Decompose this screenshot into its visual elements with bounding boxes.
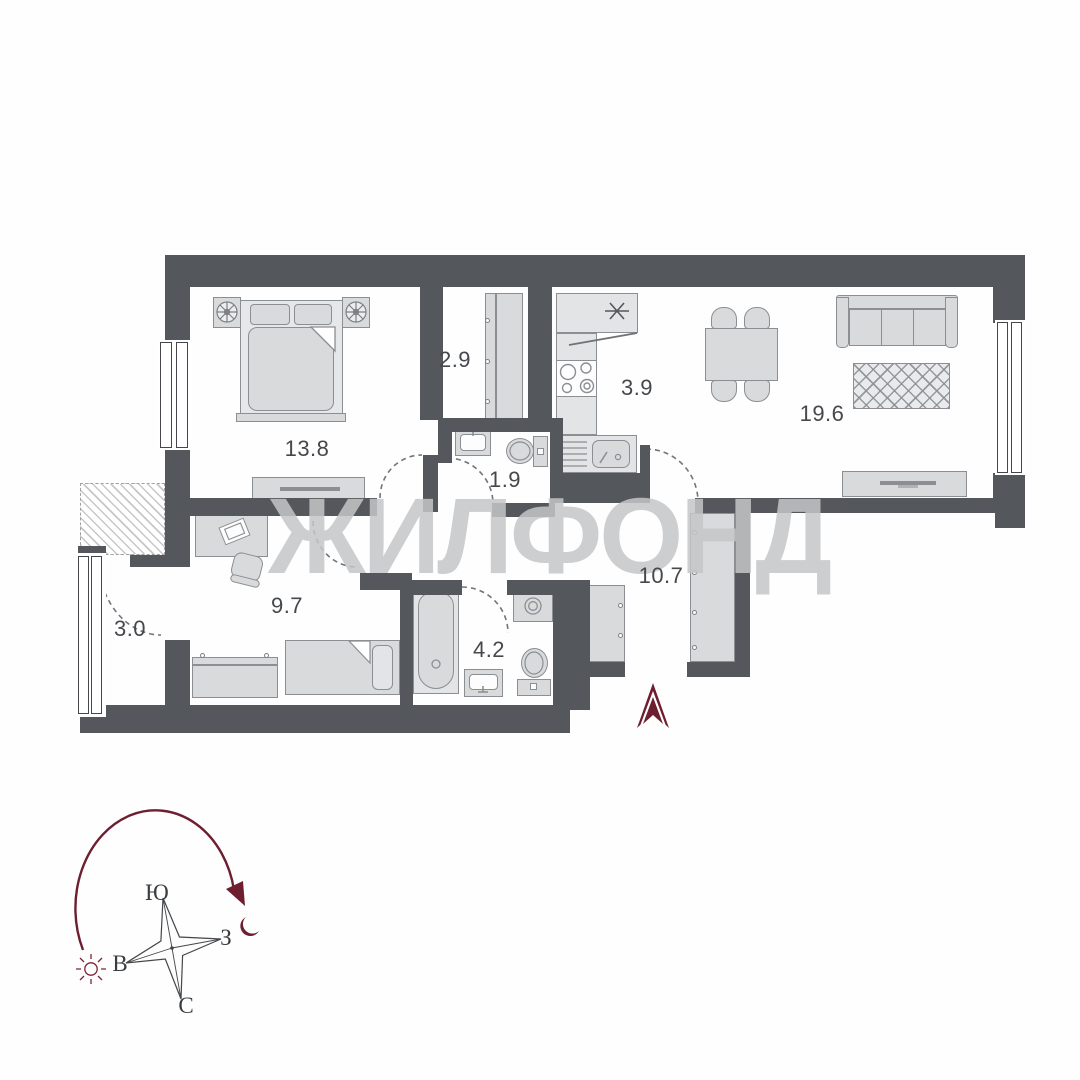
window (158, 340, 192, 450)
room-label-hallway: 10.7 (639, 563, 684, 589)
room-label-bedroom: 13.8 (285, 436, 330, 462)
nightstand (213, 297, 241, 328)
fridge-cabinet (556, 293, 638, 333)
wall (400, 590, 413, 705)
sofa-armrest (836, 297, 849, 348)
sofa-armrest (945, 297, 958, 348)
wall (580, 662, 625, 677)
sofa-seat (913, 309, 946, 346)
balcony-glazing (76, 553, 106, 717)
dresser-knob (200, 653, 205, 658)
chair (711, 380, 737, 402)
compass-label-south: Ю (145, 880, 169, 906)
pillow (372, 645, 393, 690)
compass-star (126, 898, 221, 999)
sink-basin (469, 674, 498, 690)
room-label-kids-room: 9.7 (271, 593, 303, 619)
wall (165, 287, 190, 343)
wall (528, 287, 552, 430)
toilet-button (537, 448, 544, 455)
hall-wardrobe (588, 585, 625, 662)
chair (744, 307, 770, 329)
wall (993, 287, 1025, 323)
room-label-toilet: 1.9 (489, 467, 521, 493)
wall (993, 473, 1025, 501)
sofa-back (836, 295, 958, 309)
sofa-seat (881, 309, 914, 346)
toilet-bowl (506, 438, 534, 464)
wall (438, 418, 560, 432)
wall (130, 555, 165, 567)
dresser-knob (264, 653, 269, 658)
sun-icon (76, 954, 106, 984)
dining-table (705, 328, 778, 381)
rug (853, 363, 950, 409)
wall (438, 432, 452, 463)
bed-footboard (236, 413, 346, 422)
wardrobe-handle (485, 318, 490, 323)
room-label-kitchen: 3.9 (621, 375, 653, 401)
stove (556, 360, 597, 397)
moon-icon (240, 917, 259, 936)
room-label-living-room: 19.6 (800, 401, 845, 427)
chair (744, 380, 770, 402)
toilet-bowl (521, 648, 548, 678)
compass-label-north: С (178, 993, 193, 1019)
compass-label-west: З (220, 925, 232, 951)
room-label-wardrobe: 2.9 (439, 347, 471, 373)
floor-plan: 13.8 2.9 3.9 19.6 1.9 10.7 9.7 3.0 4.2 Ж… (0, 0, 1080, 1080)
sink-basin (460, 434, 486, 451)
watermark: ЖИЛФОНД (268, 477, 824, 595)
pillow (250, 304, 290, 325)
blanket (248, 327, 334, 411)
wardrobe-handle (692, 610, 697, 615)
bathtub-basin (418, 592, 454, 689)
pillow (294, 304, 332, 325)
wardrobe-handle (618, 633, 623, 638)
dresser-edge (193, 664, 277, 666)
wardrobe-divider (495, 294, 497, 418)
toilet-button (530, 683, 537, 690)
compass-label-east: В (112, 951, 127, 977)
wardrobe-handle (485, 399, 490, 404)
balcony-hatch-area (80, 483, 165, 555)
window (995, 320, 1026, 475)
chair (711, 307, 737, 329)
sofa-seat (849, 309, 882, 346)
kitchen-sink (592, 440, 630, 468)
room-label-balcony: 3.0 (114, 616, 146, 642)
nightstand (342, 297, 370, 328)
wall (80, 705, 570, 733)
room-label-bathroom: 4.2 (473, 637, 505, 663)
wardrobe-handle (485, 359, 490, 364)
wall (553, 580, 590, 710)
arrowhead-icon (226, 881, 245, 906)
wardrobe-cabinet (485, 293, 523, 419)
wall (165, 640, 190, 705)
wardrobe-handle (692, 645, 697, 650)
wardrobe-handle (618, 603, 623, 608)
wall (165, 255, 1025, 287)
tv-base (898, 485, 918, 488)
